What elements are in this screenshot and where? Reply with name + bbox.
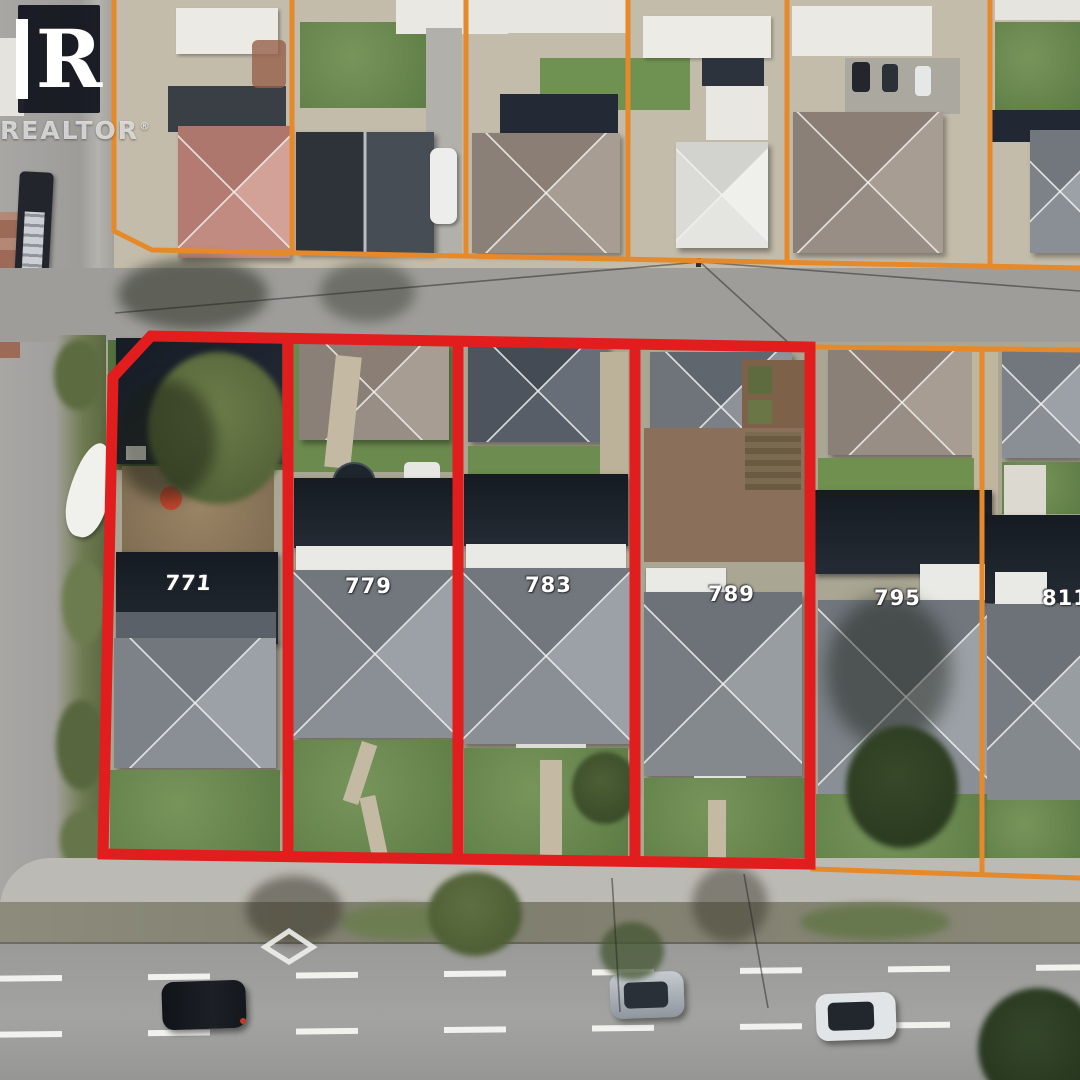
boulevard-grass-2	[800, 904, 950, 940]
house795-upper-roof	[814, 490, 992, 574]
rust-clutter-top	[252, 40, 286, 88]
lot789-front-walk	[708, 800, 726, 858]
parked-car-dark-1	[852, 62, 870, 92]
white-hip-house-top-d	[676, 142, 768, 248]
taupe-hip-house-top-c	[472, 133, 620, 253]
garden-box-2	[748, 400, 772, 424]
gray-hip-house-top-f	[1030, 130, 1080, 253]
alley-tree-shadow-1	[118, 258, 268, 330]
tree-shadow-lot795	[826, 596, 951, 746]
house-number-783: 783	[525, 573, 572, 597]
car-white-windows	[828, 1001, 875, 1031]
hedge-bush-2	[62, 560, 106, 644]
garden-box-1	[748, 366, 772, 394]
lot783-front-walk	[540, 760, 562, 858]
parked-car-white-1	[915, 66, 931, 96]
lot811-rear-garage-roof	[1002, 350, 1080, 458]
lot811-front-lawn	[987, 800, 1080, 862]
tree-canopy-lot795-front	[846, 726, 958, 848]
registered-trademark-symbol: ®	[139, 120, 152, 133]
top-lot-d-dark-shed	[702, 58, 764, 86]
top-lot-c-white-roofs	[468, 0, 628, 33]
charcoal-gable-house	[296, 132, 434, 254]
aerial-photo-scene: 771 779 783 789 795 811 R REALTOR®	[0, 0, 1080, 1080]
utility-pole	[696, 258, 701, 267]
boulevard-tree-2	[428, 872, 522, 956]
house771-hip-roof	[114, 638, 276, 768]
suv-dark	[161, 980, 247, 1031]
lot771-front-lawn	[110, 770, 280, 856]
house-number-811: 811	[1042, 586, 1080, 610]
top-lot-e-white-building	[792, 6, 932, 56]
front-sidewalk	[0, 858, 1080, 908]
boulevard-tree-1	[246, 876, 342, 944]
top-lot-f-white-roofs	[995, 0, 1080, 20]
taupe-hip-house-top-e	[793, 112, 943, 253]
realtor-logo-letter: R	[16, 19, 102, 99]
tree-shadow-lot771	[116, 380, 216, 500]
realtor-watermark-text: REALTOR®	[0, 116, 150, 145]
lot783-rear-garage-roof	[468, 340, 608, 442]
suv-taillight	[240, 1018, 246, 1024]
garden-plot-rows	[745, 432, 801, 490]
lot795-rear-garage-roof	[828, 350, 976, 455]
top-lot-d-white-shed	[706, 86, 768, 140]
lot789-front-lawn	[644, 778, 808, 858]
house795-white-patch	[920, 564, 986, 602]
house-number-795: 795	[874, 586, 921, 610]
curb-line	[0, 942, 1080, 944]
boulevard-tree-4	[692, 866, 768, 942]
top-lot-f-lawn	[995, 22, 1080, 110]
house779-upper-roof	[294, 478, 458, 548]
house-number-771: 771	[164, 571, 213, 595]
alley-tree-shadow-2	[320, 262, 415, 322]
hedge-bush-1	[54, 340, 102, 410]
house-number-789: 789	[708, 582, 755, 606]
car-silver-windows	[624, 981, 669, 1009]
tree-lot783-front	[572, 752, 638, 824]
house811-white-patch	[995, 572, 1047, 606]
white-car-top-driveway	[430, 148, 457, 224]
parked-car-dark-2	[882, 64, 898, 92]
pink-roof-house	[178, 126, 290, 258]
house789-hip-roof	[644, 592, 802, 776]
realtor-brand-name: REALTOR	[0, 116, 139, 145]
top-lot-b-lawn	[300, 22, 430, 108]
lot811-patio	[1004, 465, 1046, 515]
realtor-logo: R	[18, 5, 100, 113]
house-number-779: 779	[345, 574, 392, 598]
lot779-rear-shed-roof	[299, 344, 449, 440]
top-lot-d-white-building	[643, 16, 771, 58]
car-white	[815, 992, 897, 1042]
hedge-bush-3	[56, 700, 106, 790]
boulevard-tree-3	[600, 922, 664, 980]
house783-eave-band	[466, 544, 626, 568]
house811-hip-roof	[987, 604, 1080, 802]
house783-upper-roof	[464, 474, 628, 546]
house779-eave-band	[296, 546, 458, 570]
